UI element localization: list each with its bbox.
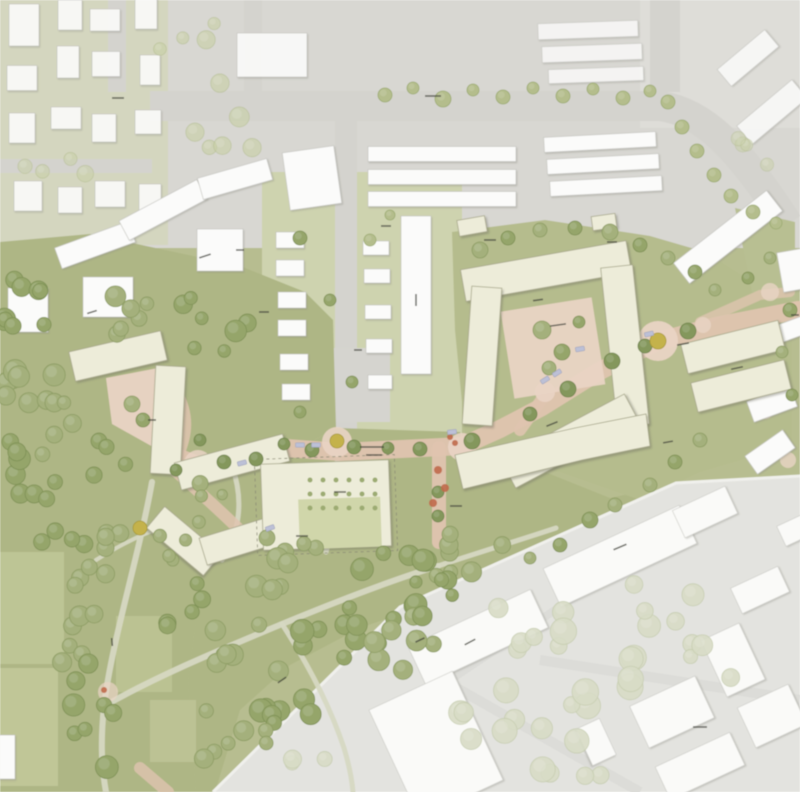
tree-highlight	[498, 91, 505, 98]
tree-highlight	[80, 724, 87, 731]
tree-highlight	[194, 517, 200, 523]
tree-highlight	[555, 604, 566, 615]
garden-plant	[321, 506, 326, 511]
tree-highlight	[194, 477, 202, 485]
tree-highlight	[785, 304, 792, 311]
tree-highlight	[663, 252, 670, 259]
tree-highlight	[762, 159, 769, 166]
label-mark	[296, 535, 308, 537]
label-mark	[148, 419, 156, 421]
tree-highlight	[261, 738, 268, 745]
tree-highlight	[568, 731, 580, 743]
tree-highlight	[155, 44, 161, 50]
tree-highlight	[69, 579, 77, 587]
garden-plant	[308, 506, 313, 511]
existing-building	[140, 55, 160, 85]
lawn-patch	[0, 552, 64, 664]
tree-highlight	[265, 582, 275, 592]
existing-building	[9, 4, 39, 46]
existing-building	[364, 269, 390, 283]
tree-highlight	[197, 313, 203, 319]
tree-highlight	[223, 738, 230, 745]
garden-plant	[347, 492, 352, 497]
tree-highlight	[640, 340, 647, 347]
play-equipment-icon	[101, 687, 107, 693]
existing-building	[366, 339, 392, 353]
tree-highlight	[726, 190, 733, 197]
tree-highlight	[367, 634, 378, 645]
garden-plant	[360, 506, 365, 511]
tree-highlight	[55, 655, 65, 665]
tree-highlight	[474, 244, 482, 252]
tree-highlight	[319, 753, 327, 761]
tree-highlight	[251, 453, 258, 460]
tree-highlight	[466, 435, 474, 443]
garden-plant	[308, 492, 313, 497]
tree-highlight	[562, 383, 570, 391]
tree-highlight	[271, 663, 281, 673]
tree-highlight	[685, 651, 692, 658]
tree-highlight	[72, 608, 82, 618]
tree-highlight	[396, 662, 406, 672]
tree-highlight	[232, 109, 242, 119]
tree-highlight	[280, 439, 286, 445]
tree-highlight	[236, 723, 246, 733]
tree-highlight	[7, 319, 15, 327]
tree-highlight	[138, 414, 145, 421]
tree-highlight	[66, 154, 73, 161]
tree-highlight	[213, 76, 222, 85]
tree-highlight	[646, 86, 652, 92]
plaza	[695, 317, 711, 333]
tree-highlight	[766, 253, 772, 259]
tree-highlight	[535, 323, 544, 332]
tree-highlight	[36, 535, 44, 543]
label-mark	[354, 349, 362, 351]
existing-building	[95, 181, 125, 207]
tree-highlight	[296, 407, 302, 413]
tree-highlight	[81, 656, 91, 666]
tree-highlight	[228, 322, 239, 333]
tree-highlight	[64, 640, 71, 647]
tree-highlight	[788, 390, 794, 396]
tree-highlight	[627, 577, 636, 586]
tree-highlight	[622, 649, 634, 661]
tree-highlight	[13, 486, 23, 496]
existing-building	[92, 114, 116, 142]
label-mark	[484, 239, 496, 241]
tree-highlight	[694, 637, 704, 647]
tree-highlight	[584, 514, 592, 522]
tree-highlight	[772, 218, 778, 224]
tree-highlight	[69, 674, 78, 683]
plaza	[761, 283, 779, 301]
tree-highlight	[558, 90, 565, 97]
tree-highlight	[339, 652, 347, 660]
tree-highlight	[199, 32, 208, 41]
tree-highlight	[594, 768, 603, 777]
tree-highlight	[533, 759, 546, 772]
existing-building	[368, 375, 392, 389]
existing-building	[9, 113, 35, 143]
tree-highlight	[621, 669, 634, 682]
existing-building	[92, 52, 120, 77]
tree-highlight	[98, 758, 109, 769]
garden-plant	[373, 478, 378, 483]
existing-building	[368, 192, 516, 207]
tree-highlight	[384, 443, 390, 449]
label-mark	[381, 225, 391, 227]
existing-building	[237, 33, 307, 77]
tree-highlight	[204, 142, 211, 149]
tree-highlight	[281, 555, 291, 565]
label-mark	[450, 505, 462, 507]
tree-highlight	[187, 606, 194, 613]
tree-highlight	[456, 704, 466, 714]
existing-building	[14, 181, 42, 211]
existing-building	[135, 110, 161, 134]
garden-plant	[347, 506, 352, 511]
existing-building	[135, 0, 157, 29]
tree-highlight	[21, 395, 31, 405]
tree-highlight	[93, 435, 101, 443]
tree-highlight	[529, 83, 535, 89]
tree-highlight	[514, 635, 524, 645]
tree-highlight	[218, 490, 223, 495]
play-equipment-icon	[434, 466, 442, 474]
tree-highlight	[172, 465, 178, 471]
tree-highlight	[88, 469, 96, 477]
car-marker	[312, 443, 321, 448]
tree-highlight	[589, 84, 595, 90]
tree-highlight	[444, 528, 452, 536]
tree-highlight	[685, 586, 696, 597]
tree-highlight	[670, 456, 677, 463]
tree-highlight	[709, 169, 716, 176]
tree-highlight	[49, 524, 57, 532]
tree-highlight	[349, 441, 356, 448]
tree-highlight	[409, 83, 415, 89]
label-mark	[112, 97, 124, 99]
tree-highlight	[348, 377, 354, 383]
courtyard-paving	[501, 297, 606, 398]
tree-highlight	[303, 706, 314, 717]
play-equipment-icon	[429, 499, 437, 507]
tree-highlight	[196, 435, 202, 441]
label-mark	[693, 726, 707, 728]
garden-plant	[360, 492, 365, 497]
tree-highlight	[353, 560, 364, 571]
garden-plant	[373, 506, 378, 511]
tree-highlight	[47, 395, 56, 404]
tree-highlight	[268, 717, 276, 725]
tree-highlight	[197, 751, 207, 761]
tree-highlight	[544, 362, 551, 369]
tree-highlight	[690, 266, 697, 273]
tree-highlight	[99, 530, 108, 539]
car-marker	[296, 443, 305, 448]
tree-highlight	[497, 680, 510, 693]
tree-highlight	[66, 533, 74, 541]
garden-plant	[321, 492, 326, 497]
garden-plant	[373, 492, 378, 497]
tree-highlight	[248, 577, 259, 588]
tree-highlight	[181, 535, 187, 541]
tree-highlight	[197, 491, 203, 497]
existing-building	[282, 384, 310, 400]
tree-highlight	[604, 226, 612, 234]
tree-highlight	[434, 511, 440, 517]
tree-highlight	[83, 561, 91, 569]
tree-highlight	[115, 323, 123, 331]
tree-highlight	[733, 133, 740, 140]
tree-highlight	[469, 85, 475, 91]
tree-highlight	[503, 232, 510, 239]
tree-highlight	[386, 211, 391, 216]
tree-highlight	[711, 285, 717, 291]
existing-building	[58, 0, 82, 30]
tree-highlight	[98, 699, 106, 707]
label-mark	[791, 314, 799, 316]
tree-highlight	[408, 596, 419, 607]
tree-highlight	[142, 298, 149, 305]
tree-highlight	[663, 96, 670, 103]
tree-highlight	[692, 145, 699, 152]
tree-highlight	[570, 222, 577, 229]
tree-highlight	[349, 617, 359, 627]
tree-highlight	[87, 607, 96, 616]
label-mark	[366, 454, 382, 456]
tree-highlight	[415, 608, 425, 618]
tree-highlight	[14, 279, 24, 289]
existing-building	[368, 147, 516, 162]
tree-highlight	[525, 408, 532, 415]
label-mark	[360, 446, 384, 448]
tree-highlight	[108, 288, 118, 298]
garden-plant	[321, 478, 326, 483]
tree-highlight	[402, 547, 412, 557]
existing-building	[538, 20, 638, 39]
tree-highlight	[682, 325, 690, 333]
garden-plant	[347, 478, 352, 483]
label-mark	[236, 249, 244, 251]
tree-highlight	[220, 647, 229, 656]
tree-highlight	[606, 355, 614, 363]
tree-highlight	[220, 346, 226, 352]
tree-highlight	[534, 720, 545, 731]
tree-highlight	[209, 19, 215, 25]
existing-building	[368, 170, 516, 185]
tree-highlight	[4, 435, 12, 443]
tree-highlight	[495, 721, 508, 734]
tree-highlight	[37, 448, 44, 455]
tree-highlight	[635, 239, 642, 246]
tree-highlight	[384, 623, 394, 633]
tree-highlight	[11, 368, 22, 379]
tree-highlight	[748, 206, 755, 213]
tree-highlight	[778, 347, 784, 353]
tree-highlight	[219, 456, 226, 463]
tree-highlight	[575, 681, 588, 694]
site-plan	[0, 0, 800, 792]
tree-highlight	[575, 317, 581, 323]
tree-highlight	[553, 621, 566, 634]
existing-building	[278, 320, 306, 336]
tree-highlight	[66, 416, 75, 425]
tree-highlight	[69, 727, 76, 734]
existing-building	[90, 9, 120, 31]
tree-highlight	[49, 476, 56, 483]
tree-highlight	[695, 434, 702, 441]
tree-highlight	[415, 551, 426, 562]
tree-highlight	[253, 619, 261, 627]
tree-highlight	[155, 531, 162, 538]
existing-building	[57, 46, 79, 78]
label-mark	[415, 294, 417, 306]
tree-highlight	[296, 691, 307, 702]
existing-building	[51, 107, 81, 129]
existing-building	[7, 66, 37, 91]
tree-highlight	[164, 551, 170, 557]
tree-highlight	[126, 398, 134, 406]
tree-highlight	[464, 564, 474, 574]
garden-plant	[334, 506, 339, 511]
tree-highlight	[527, 630, 536, 639]
tree-highlight	[526, 553, 532, 559]
existing-building	[365, 305, 391, 319]
accent-tree-icon	[330, 434, 344, 448]
tree-highlight	[380, 89, 387, 96]
tree-highlight	[556, 346, 564, 354]
tree-highlight	[535, 224, 542, 231]
tree-highlight	[59, 397, 66, 404]
tree-highlight	[245, 140, 254, 149]
tree-highlight	[447, 590, 453, 596]
tree-highlight	[269, 550, 280, 561]
tree-highlight	[186, 293, 193, 300]
tree-highlight	[192, 578, 199, 585]
existing-building	[542, 43, 642, 62]
existing-building	[282, 146, 342, 211]
label-mark	[607, 241, 617, 243]
tree-highlight	[65, 696, 76, 707]
tree-highlight	[366, 235, 372, 241]
tree-highlight	[645, 479, 652, 486]
tree-highlight	[286, 752, 295, 761]
existing-building	[548, 66, 643, 83]
garden-plant	[334, 478, 339, 483]
tree-highlight	[610, 499, 617, 506]
tree-highlight	[491, 600, 501, 610]
tree-highlight	[120, 459, 127, 466]
tree-highlight	[618, 92, 625, 99]
tree-highlight	[639, 604, 647, 612]
existing-building	[0, 735, 15, 779]
play-equipment-icon	[441, 484, 449, 492]
site-plan-map	[0, 0, 800, 792]
tree-highlight	[496, 538, 504, 546]
tree-highlight	[216, 139, 225, 148]
tree-highlight	[427, 638, 435, 646]
tree-highlight	[378, 547, 385, 554]
tree-highlight	[415, 443, 422, 450]
tree-highlight	[201, 705, 208, 712]
existing-building	[278, 292, 306, 308]
tree-highlight	[79, 167, 87, 175]
tree-highlight	[260, 725, 267, 732]
tree-highlight	[261, 531, 269, 539]
car-marker	[447, 429, 456, 434]
garden-plant	[360, 478, 365, 483]
tree-highlight	[178, 33, 184, 39]
tree-highlight	[677, 121, 684, 128]
label-mark	[259, 311, 269, 313]
tree-highlight	[34, 285, 42, 293]
tree-highlight	[337, 617, 347, 627]
tree-highlight	[434, 487, 440, 493]
tree-highlight	[99, 567, 108, 576]
tree-highlight	[744, 273, 750, 279]
tree-highlight	[295, 232, 302, 239]
tree-highlight	[188, 125, 197, 134]
tree-highlight	[388, 613, 396, 621]
existing-building	[280, 354, 308, 370]
tree-highlight	[107, 706, 116, 715]
tree-highlight	[113, 526, 122, 535]
garden-plant	[308, 478, 313, 483]
tree-highlight	[10, 445, 19, 454]
tree-highlight	[436, 574, 443, 581]
tree-highlight	[189, 343, 196, 350]
tree-highlight	[48, 428, 56, 436]
tree-highlight	[46, 366, 57, 377]
tree-highlight	[326, 295, 332, 301]
tree-highlight	[669, 614, 678, 623]
tree-highlight	[161, 619, 169, 627]
existing-building	[58, 187, 82, 213]
tree-highlight	[252, 701, 264, 713]
tree-highlight	[579, 769, 588, 778]
tree-highlight	[566, 698, 574, 706]
tree-highlight	[411, 577, 417, 583]
tree-highlight	[555, 539, 562, 546]
accent-tree-icon	[133, 521, 147, 535]
tree-highlight	[208, 622, 218, 632]
tree-highlight	[39, 319, 46, 326]
tree-highlight	[76, 647, 84, 655]
tree-highlight	[196, 593, 205, 602]
tree-highlight	[41, 492, 49, 500]
label-mark	[334, 491, 346, 493]
existing-building	[276, 260, 304, 276]
tree-highlight	[101, 441, 109, 449]
tree-highlight	[27, 487, 36, 496]
label-mark	[425, 95, 441, 97]
tree-highlight	[20, 161, 27, 168]
tree-highlight	[463, 730, 474, 741]
tree-highlight	[724, 670, 733, 679]
lawn-patch	[150, 700, 196, 762]
tree-highlight	[124, 301, 133, 310]
tree-highlight	[344, 602, 351, 609]
tree-highlight	[37, 166, 44, 173]
play-equipment-icon	[452, 440, 458, 446]
tree-highlight	[293, 622, 305, 634]
tree-highlight	[298, 538, 305, 545]
play-equipment-icon	[447, 434, 453, 440]
